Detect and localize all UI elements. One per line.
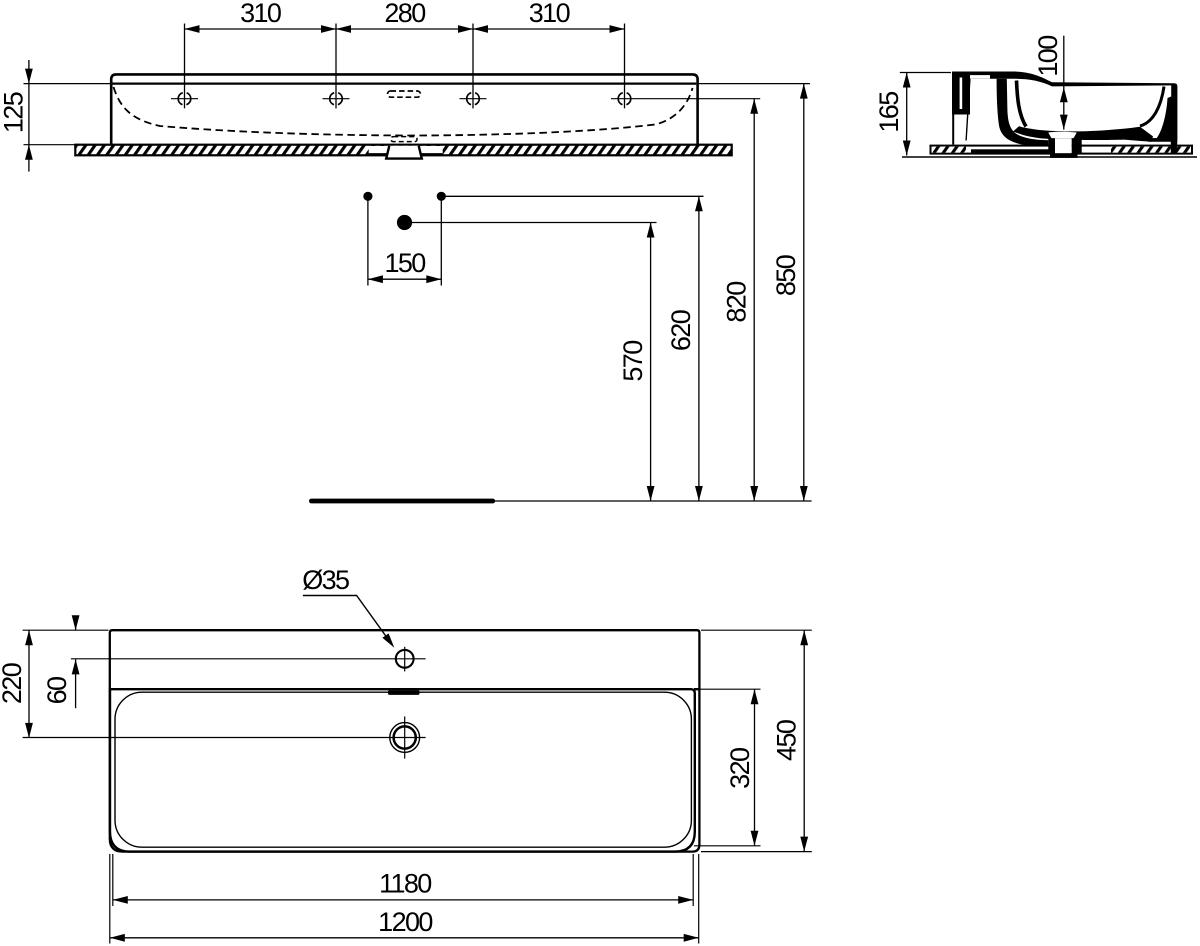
- svg-text:60: 60: [42, 677, 72, 704]
- svg-text:820: 820: [721, 282, 751, 323]
- svg-text:1200: 1200: [378, 907, 432, 937]
- svg-text:125: 125: [0, 92, 29, 133]
- svg-text:280: 280: [384, 0, 425, 28]
- svg-text:450: 450: [772, 720, 802, 761]
- svg-text:100: 100: [1033, 36, 1063, 77]
- svg-text:570: 570: [618, 341, 648, 382]
- svg-text:850: 850: [771, 255, 801, 296]
- svg-text:310: 310: [240, 0, 281, 28]
- svg-text:1180: 1180: [379, 869, 431, 899]
- svg-text:310: 310: [529, 0, 570, 28]
- svg-text:165: 165: [874, 92, 904, 133]
- svg-text:150: 150: [384, 248, 425, 278]
- svg-text:620: 620: [666, 310, 696, 351]
- svg-text:320: 320: [725, 748, 755, 789]
- svg-text:220: 220: [0, 663, 27, 704]
- svg-text:Ø35: Ø35: [302, 565, 349, 595]
